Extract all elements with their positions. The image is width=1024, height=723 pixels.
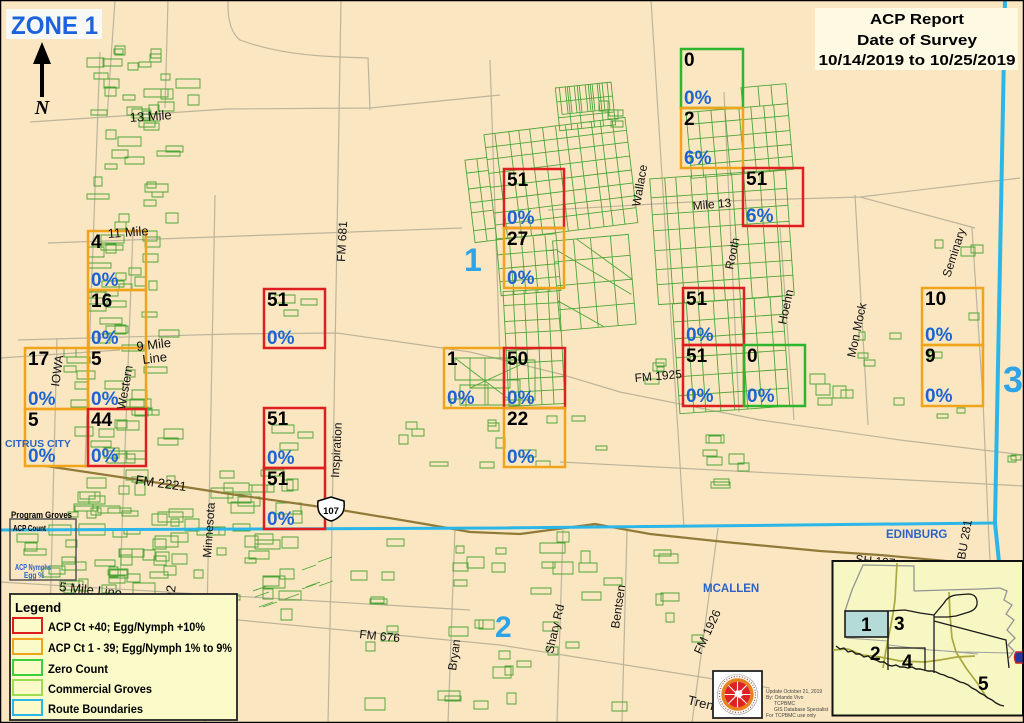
svg-text:10/14/2019 to 10/25/2019: 10/14/2019 to 10/25/2019 [819,52,1016,69]
svg-text:51: 51 [746,169,768,190]
svg-text:0%: 0% [747,386,775,407]
svg-text:13 Mile: 13 Mile [129,107,172,125]
svg-text:0%: 0% [91,270,119,291]
svg-text:3: 3 [894,614,905,635]
svg-text:22: 22 [507,409,528,430]
svg-text:5: 5 [91,349,102,370]
svg-text:51: 51 [267,409,289,430]
svg-text:50: 50 [507,349,528,370]
svg-text:Program Groves: Program Groves [11,510,72,520]
svg-text:6%: 6% [746,206,774,227]
svg-text:For TCPBMC use only: For TCPBMC use only [766,713,816,719]
svg-text:0: 0 [747,346,758,367]
svg-text:44: 44 [91,410,113,431]
svg-text:0%: 0% [267,448,295,469]
svg-text:17: 17 [28,349,49,370]
svg-text:5: 5 [28,410,39,431]
svg-text:ZONE 1: ZONE 1 [11,12,98,40]
svg-text:0%: 0% [684,88,712,109]
svg-text:MCALLEN: MCALLEN [703,583,759,595]
svg-text:Egg %: Egg % [24,571,44,580]
svg-text:0%: 0% [686,325,714,346]
svg-text:4: 4 [91,232,102,253]
svg-text:0%: 0% [28,389,56,410]
svg-text:ACP Count: ACP Count [13,523,46,533]
svg-text:3: 3 [1003,359,1023,400]
svg-text:Route Boundaries: Route Boundaries [48,704,143,716]
svg-text:51: 51 [267,469,289,490]
svg-text:51: 51 [267,290,289,311]
svg-text:0: 0 [684,50,695,71]
svg-text:FM 681: FM 681 [334,220,350,262]
svg-text:0%: 0% [267,509,295,530]
svg-text:27: 27 [507,229,528,250]
svg-text:0%: 0% [267,328,295,349]
svg-text:0%: 0% [925,386,953,407]
svg-text:0%: 0% [686,386,714,407]
svg-text:16: 16 [91,291,112,312]
svg-text:1: 1 [861,615,872,636]
svg-text:CITRUS CITY: CITRUS CITY [5,438,71,450]
svg-text:10: 10 [925,289,946,310]
svg-text:1: 1 [447,349,458,370]
svg-text:11 Mile: 11 Mile [107,223,149,241]
svg-text:ACP Ct 1 - 39; Egg/Nymph 1% to: ACP Ct 1 - 39; Egg/Nymph 1% to 9% [48,643,232,655]
svg-text:ACP Ct +40; Egg/Nymph +10%: ACP Ct +40; Egg/Nymph +10% [48,622,205,634]
svg-text:0%: 0% [91,446,119,467]
svg-text:1: 1 [464,242,482,278]
svg-text:5: 5 [978,674,989,695]
svg-text:107: 107 [323,506,339,517]
svg-text:Line: Line [142,349,168,367]
svg-text:0%: 0% [507,447,535,468]
svg-text:0%: 0% [91,328,119,349]
svg-text:0%: 0% [925,325,953,346]
svg-text:2: 2 [870,644,881,665]
svg-text:EDINBURG: EDINBURG [886,529,947,541]
svg-text:51: 51 [686,346,708,367]
svg-text:2: 2 [495,611,512,644]
svg-text:0%: 0% [507,268,535,289]
svg-text:2: 2 [684,109,695,130]
svg-text:Commercial Groves: Commercial Groves [48,684,152,696]
svg-text:Legend: Legend [15,600,61,615]
svg-text:51: 51 [507,170,529,191]
svg-text:Date of Survey: Date of Survey [857,32,978,49]
svg-text:0%: 0% [507,208,535,229]
svg-text:Inspiration: Inspiration [328,422,345,478]
svg-text:51: 51 [686,289,708,310]
svg-text:ACP Report: ACP Report [870,11,964,28]
svg-text:0%: 0% [447,388,475,409]
svg-text:0%: 0% [507,388,535,409]
svg-text:9: 9 [925,346,936,367]
svg-text:4: 4 [902,652,913,673]
svg-text:N: N [34,97,51,119]
svg-text:Zero Count: Zero Count [48,664,108,676]
svg-text:6%: 6% [684,148,712,169]
